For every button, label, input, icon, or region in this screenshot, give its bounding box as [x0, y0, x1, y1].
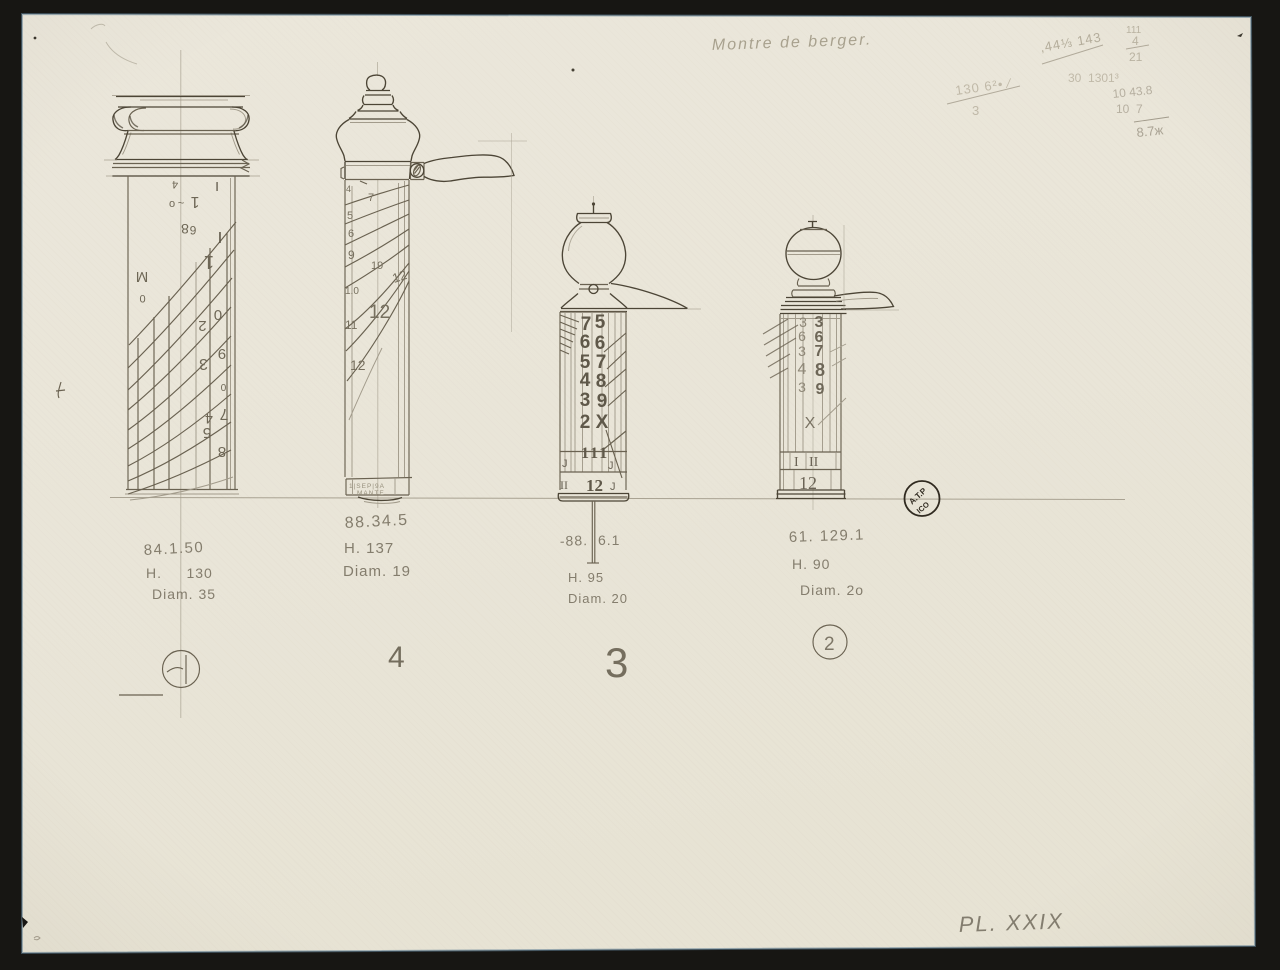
svg-text:X: X [805, 415, 816, 432]
svg-text:9: 9 [348, 248, 355, 262]
svg-text:6: 6 [348, 228, 354, 240]
svg-text:4: 4 [388, 641, 405, 674]
svg-text:0: 0 [220, 381, 226, 392]
svg-text:21: 21 [1129, 50, 1143, 64]
svg-text:84.1.50: 84.1.50 [143, 539, 204, 559]
svg-text:2: 2 [198, 317, 206, 334]
svg-text:4: 4 [580, 370, 591, 391]
svg-text:o: o [169, 198, 175, 210]
svg-text:1.0: 1.0 [345, 286, 359, 297]
svg-text:0: 0 [214, 306, 222, 323]
svg-text:12: 12 [586, 476, 603, 495]
svg-text:H. 90: H. 90 [792, 556, 830, 572]
svg-text:8: 8 [218, 443, 226, 460]
svg-text:3: 3 [605, 639, 628, 686]
svg-text:8: 8 [815, 360, 825, 380]
svg-text:9: 9 [816, 381, 825, 398]
svg-text:-88.: -88. [560, 532, 589, 549]
svg-text:J: J [608, 460, 614, 472]
svg-text:9: 9 [597, 391, 608, 412]
svg-text:1: 1 [190, 193, 199, 210]
svg-text:M: M [136, 268, 149, 285]
svg-text:4: 4 [346, 184, 351, 194]
svg-text:6: 6 [189, 223, 196, 237]
svg-text:Diam. 2o: Diam. 2o [800, 582, 864, 598]
svg-text:II: II [809, 455, 819, 470]
svg-text:0: 0 [139, 292, 145, 304]
svg-text:6: 6 [595, 333, 606, 354]
svg-text:6: 6 [580, 332, 591, 353]
svg-text:4: 4 [798, 361, 807, 378]
svg-text:4: 4 [172, 178, 178, 190]
svg-text:6: 6 [798, 328, 806, 344]
svg-text:Diam. 35: Diam. 35 [152, 586, 216, 602]
svg-text:I: I [215, 179, 219, 194]
svg-text:88.34.5: 88.34.5 [344, 512, 409, 532]
svg-text:7: 7 [219, 405, 228, 422]
svg-text:4: 4 [1132, 34, 1139, 48]
svg-text:5: 5 [203, 424, 211, 441]
svg-text:Diam. 19: Diam. 19 [343, 563, 411, 580]
svg-text:10 7: 10 7 [1116, 102, 1143, 116]
svg-text:3: 3 [972, 103, 979, 118]
svg-text:30 1301³: 30 1301³ [1068, 71, 1119, 85]
svg-text:5: 5 [347, 210, 353, 222]
svg-text:H. 137: H. 137 [344, 540, 394, 557]
svg-text:Diam. 20: Diam. 20 [568, 591, 628, 606]
svg-text:3: 3 [580, 390, 591, 411]
svg-text:H. 95: H. 95 [568, 570, 604, 585]
svg-text:8.7ж: 8.7ж [1136, 122, 1164, 140]
svg-text:12: 12 [350, 357, 366, 373]
svg-text:J: J [610, 481, 616, 493]
svg-text:PL. XXIX: PL. XXIX [958, 908, 1064, 937]
svg-text:7: 7 [815, 343, 824, 360]
svg-text:2: 2 [824, 634, 835, 655]
svg-text:I: I [218, 230, 222, 247]
svg-text:MANTE: MANTE [357, 490, 385, 497]
svg-text:3: 3 [798, 343, 806, 359]
svg-text:5: 5 [595, 312, 606, 333]
svg-text:II: II [560, 478, 568, 492]
svg-text:3: 3 [199, 355, 208, 372]
svg-text:3: 3 [798, 379, 806, 395]
svg-text:61. 129.1: 61. 129.1 [789, 526, 866, 546]
svg-text:6.1: 6.1 [598, 532, 620, 548]
svg-text:8: 8 [596, 371, 607, 392]
svg-text:2: 2 [580, 412, 591, 433]
svg-text:7: 7 [596, 352, 607, 373]
svg-text:H. 130: H. 130 [146, 565, 213, 581]
svg-text:111: 111 [581, 445, 609, 462]
svg-text:J: J [562, 458, 568, 470]
svg-text:~: ~ [178, 196, 184, 208]
svg-text:I: I [794, 455, 799, 470]
svg-text:1|SEP|9A: 1|SEP|9A [349, 483, 385, 490]
svg-text:11: 11 [345, 318, 358, 332]
svg-text:1: 1 [204, 252, 214, 272]
svg-text:7: 7 [368, 192, 374, 204]
svg-text:12: 12 [369, 302, 390, 323]
svg-text:9: 9 [218, 345, 226, 362]
svg-text:8: 8 [181, 221, 189, 237]
svg-text:X: X [596, 412, 609, 433]
svg-text:19: 19 [371, 260, 383, 272]
